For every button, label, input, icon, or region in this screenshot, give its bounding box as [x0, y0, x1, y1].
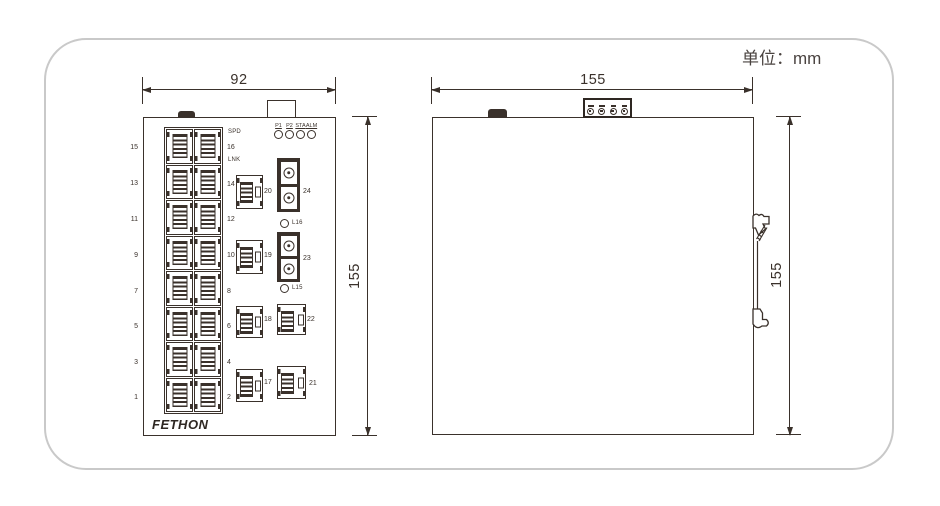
sc-ferrule-icon [281, 187, 297, 209]
port-label: 5 [118, 323, 138, 330]
arrow-down-icon [787, 427, 793, 436]
fiber-led-label: L15 [292, 285, 303, 291]
rj45-port [236, 175, 263, 209]
front-width-value: 92 [224, 72, 254, 88]
top-connector-tab [267, 100, 296, 117]
rj45-port [166, 378, 193, 413]
fiber-led-label: L16 [292, 220, 303, 226]
arrow-right-icon [744, 87, 753, 93]
din-rail-clip-icon [752, 212, 778, 338]
spd-label: SPD [228, 129, 241, 135]
rj45-port [166, 307, 193, 342]
port-label: 9 [118, 252, 138, 259]
port-label: 13 [118, 180, 138, 187]
rj45-port [194, 165, 221, 200]
rj45-port [236, 306, 263, 338]
arrow-left-icon [431, 87, 440, 93]
rj45-port [194, 307, 221, 342]
port-label: 17 [264, 379, 272, 386]
rj45-port [166, 236, 193, 271]
port-label: 3 [118, 359, 138, 366]
brand-logo: FETHON [152, 417, 208, 432]
rj45-port [166, 129, 193, 164]
dimension-drawing: 单位：mm 92 155 P1 P2 STA ALM [0, 0, 940, 506]
height-dimension-line [367, 117, 368, 435]
width-dimension-line [432, 89, 752, 90]
rj45-port [194, 236, 221, 271]
led-indicator-icon [280, 284, 289, 293]
sc-fiber-port [277, 232, 300, 282]
port-label: 12 [227, 216, 235, 223]
led-indicator-icon [285, 130, 294, 139]
sc-fiber-port [277, 158, 300, 212]
rj45-port [194, 378, 221, 413]
unit-label: 单位：mm [742, 44, 821, 69]
port-label: 21 [309, 380, 317, 387]
led-indicator-icon [274, 130, 283, 139]
led-indicator-icon [280, 219, 289, 228]
port-label: 11 [118, 216, 138, 223]
port-label: 19 [264, 252, 272, 259]
power-terminal-block [583, 98, 632, 118]
rj45-port [194, 342, 221, 377]
rj45-port [166, 271, 193, 306]
port-label: 22 [307, 316, 315, 323]
arrow-left-icon [142, 87, 151, 93]
rj45-port [194, 271, 221, 306]
rj45-port [236, 369, 263, 402]
front-height-value: 155 [347, 263, 363, 289]
terminal-screw-icon [610, 108, 617, 115]
lnk-label: LNK [228, 157, 240, 163]
port-label: 4 [227, 359, 231, 366]
port-label: 14 [227, 181, 235, 188]
port-label: 20 [264, 188, 272, 195]
arrow-right-icon [327, 87, 336, 93]
rj45-port [194, 129, 221, 164]
terminal-screw-icon [621, 108, 628, 115]
port-label: 8 [227, 288, 231, 295]
sc-ferrule-icon [281, 236, 297, 256]
port-label: 15 [118, 144, 138, 151]
port-label: 23 [303, 255, 311, 262]
arrow-down-icon [365, 427, 371, 436]
port-label: 24 [303, 188, 311, 195]
terminal-screw-icon [587, 108, 594, 115]
rj45-port [277, 366, 306, 399]
rj45-port [166, 200, 193, 235]
port-label: 6 [227, 323, 231, 330]
arrow-up-icon [365, 116, 371, 125]
led-indicator-icon [307, 130, 316, 139]
led-indicator-icon [296, 130, 305, 139]
rj45-port [194, 200, 221, 235]
terminal-screw-icon [598, 108, 605, 115]
led-label-alm: ALM [303, 123, 321, 129]
port-label: 7 [118, 288, 138, 295]
sc-ferrule-icon [281, 162, 297, 184]
side-panel [432, 117, 754, 435]
side-width-value: 155 [577, 72, 609, 88]
port-label: 2 [227, 394, 231, 401]
rj45-port [166, 342, 193, 377]
mounting-bump [488, 109, 507, 117]
height-dimension-line [789, 117, 790, 435]
rj45-port [277, 304, 306, 335]
port-label: 10 [227, 252, 235, 259]
rj45-port [236, 240, 263, 274]
arrow-up-icon [787, 116, 793, 125]
rj45-port-block [164, 127, 223, 414]
port-label: 16 [227, 144, 235, 151]
sc-ferrule-icon [281, 259, 297, 279]
port-label: 18 [264, 316, 272, 323]
width-dimension-line [143, 89, 335, 90]
port-label: 1 [118, 394, 138, 401]
rj45-port [166, 165, 193, 200]
